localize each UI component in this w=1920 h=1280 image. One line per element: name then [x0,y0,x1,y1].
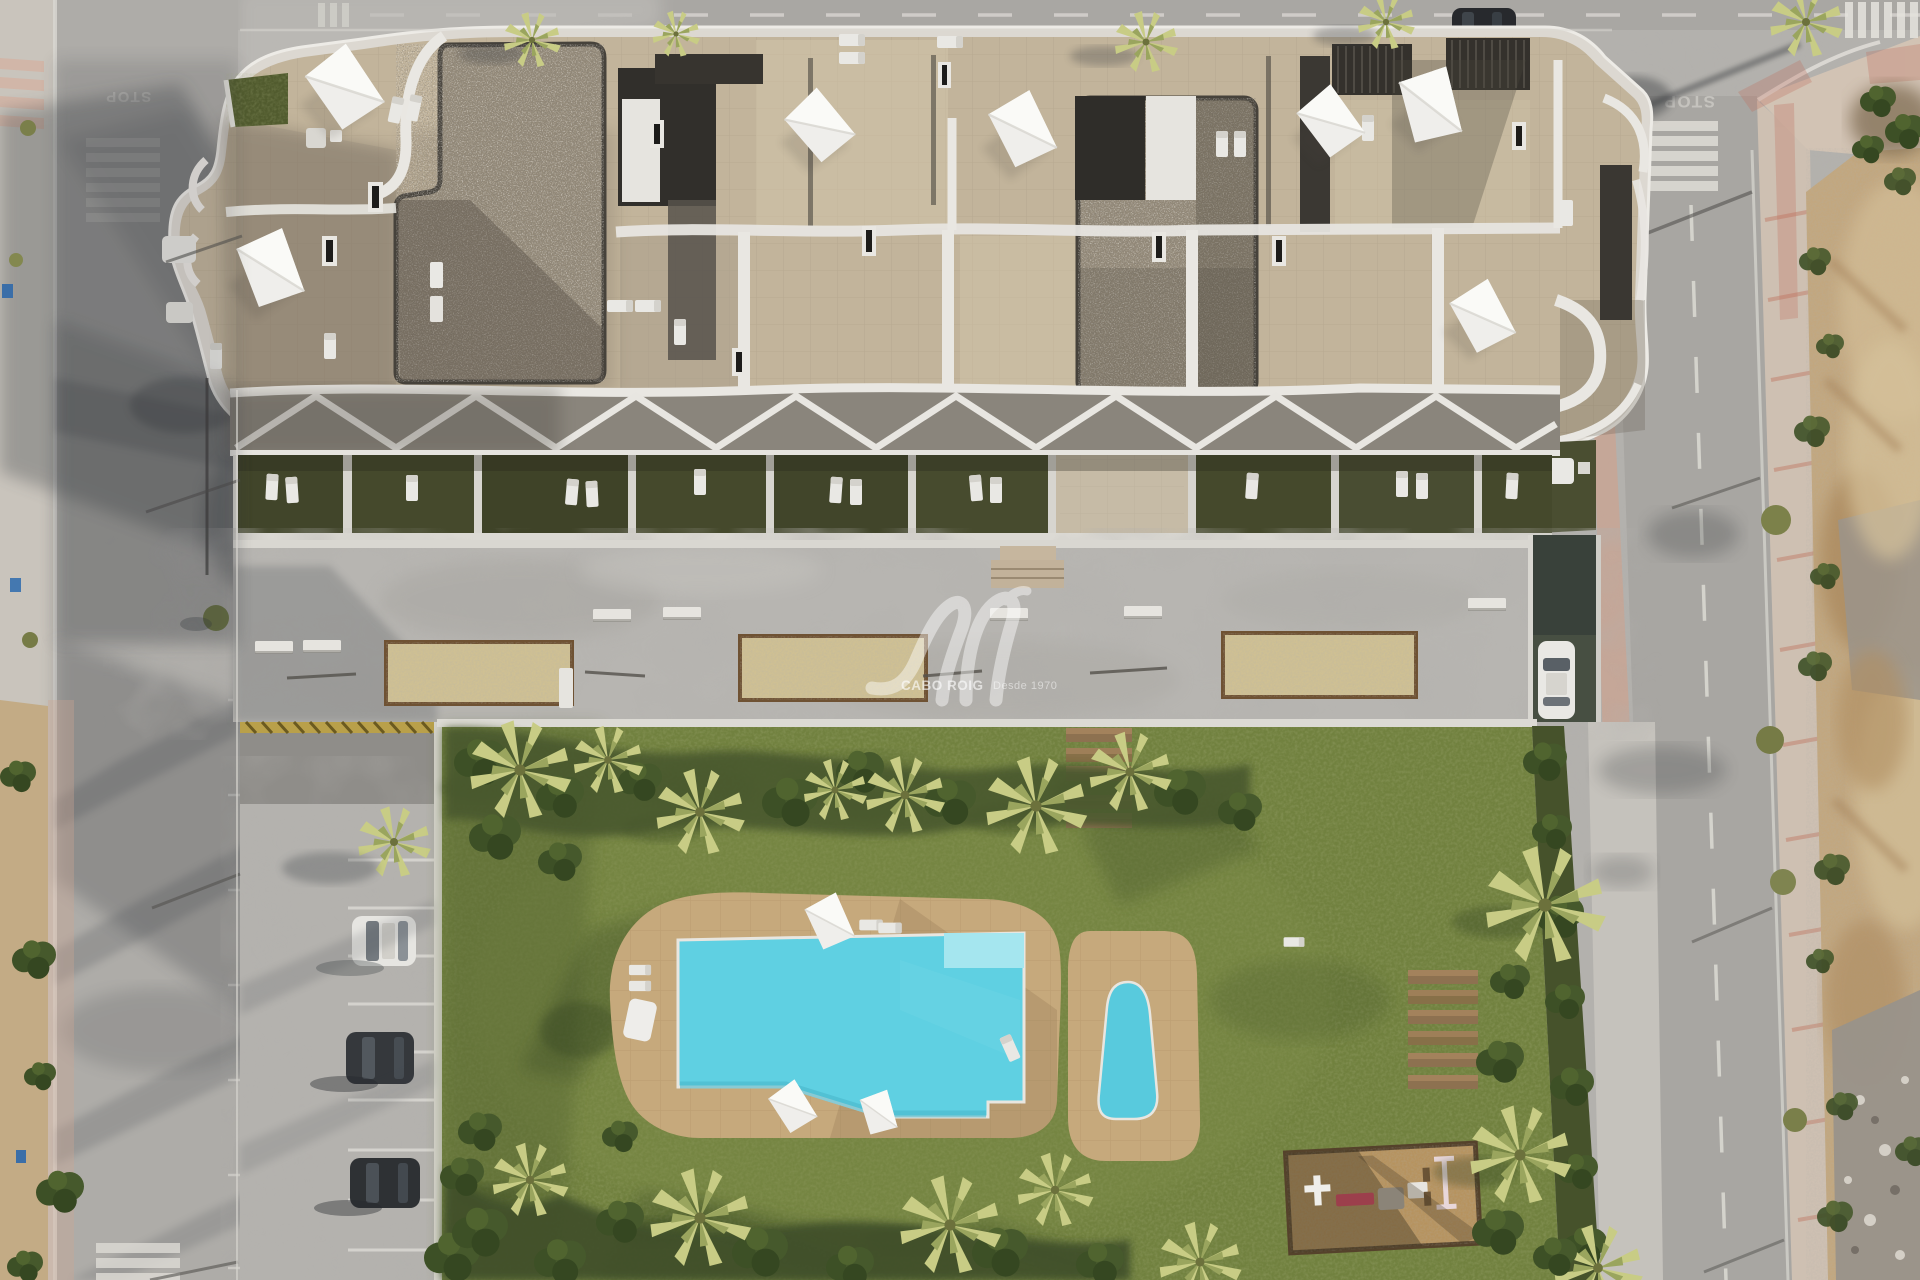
svg-text:CABO ROIG: CABO ROIG [901,678,984,693]
svg-text:Desde 1970: Desde 1970 [993,680,1057,692]
